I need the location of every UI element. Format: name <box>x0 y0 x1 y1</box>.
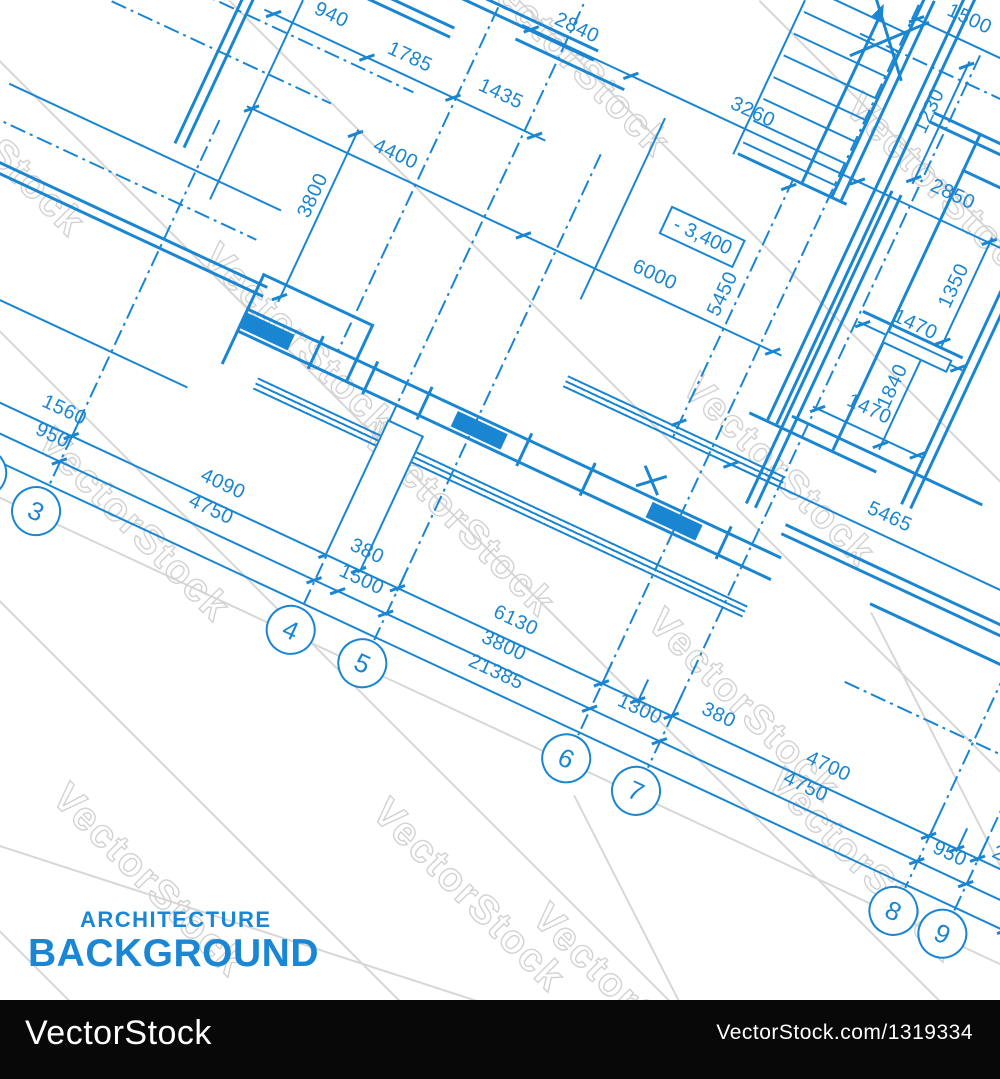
blueprint-line <box>783 54 876 99</box>
footer-bar: VectorStock VectorStock.com/1319334 <box>0 1000 1000 1079</box>
blueprint-background: VectorStockVectorStockVectorStockVectorS… <box>0 0 1000 1079</box>
axis-circle: 9 <box>909 900 975 966</box>
blueprint-line <box>814 0 907 34</box>
blueprint-line <box>773 76 866 121</box>
image-reference-url: VectorStock.com/1319334 <box>716 1021 973 1045</box>
blueprint-line <box>763 98 856 143</box>
axis-circle: 6 <box>533 725 599 791</box>
dimension-label: 2850 <box>927 175 979 215</box>
title-line-architecture: ARCHITECTURE <box>80 907 272 933</box>
blueprint-line <box>844 681 1000 810</box>
blueprint-line <box>0 268 188 388</box>
blueprint-line <box>209 0 303 200</box>
axis-circle: 7 <box>603 758 669 824</box>
dimension-label: 3260 <box>727 92 779 132</box>
dimension-label: 940 <box>311 0 352 33</box>
dimension-label: 1785 <box>384 37 436 77</box>
axis-circle: 5 <box>329 630 395 696</box>
vectorstock-logo: VectorStock <box>25 1014 212 1053</box>
dimension-label: 380 <box>698 698 739 734</box>
blueprint-line <box>246 307 782 559</box>
blueprint-line <box>268 0 455 39</box>
axis-circle <box>0 440 15 506</box>
blueprint-line <box>781 523 1000 695</box>
title-line-background: BACKGROUND <box>28 932 319 976</box>
blueprint-line <box>236 329 772 581</box>
blueprint-line <box>264 9 546 142</box>
dimension-label: 6000 <box>629 255 681 295</box>
elevation-marker: - 3,400 <box>658 206 746 269</box>
blueprint-line <box>277 129 359 302</box>
dimension-label: 4400 <box>369 134 421 174</box>
blueprint-line <box>253 378 748 618</box>
blueprint-line <box>59 0 332 104</box>
dimension-label: 950 <box>929 837 970 873</box>
blueprint-line <box>0 408 1000 913</box>
dimension-label: 1435 <box>475 74 527 114</box>
blueprint-line <box>737 152 847 205</box>
axis-circle: 3 <box>3 478 69 544</box>
